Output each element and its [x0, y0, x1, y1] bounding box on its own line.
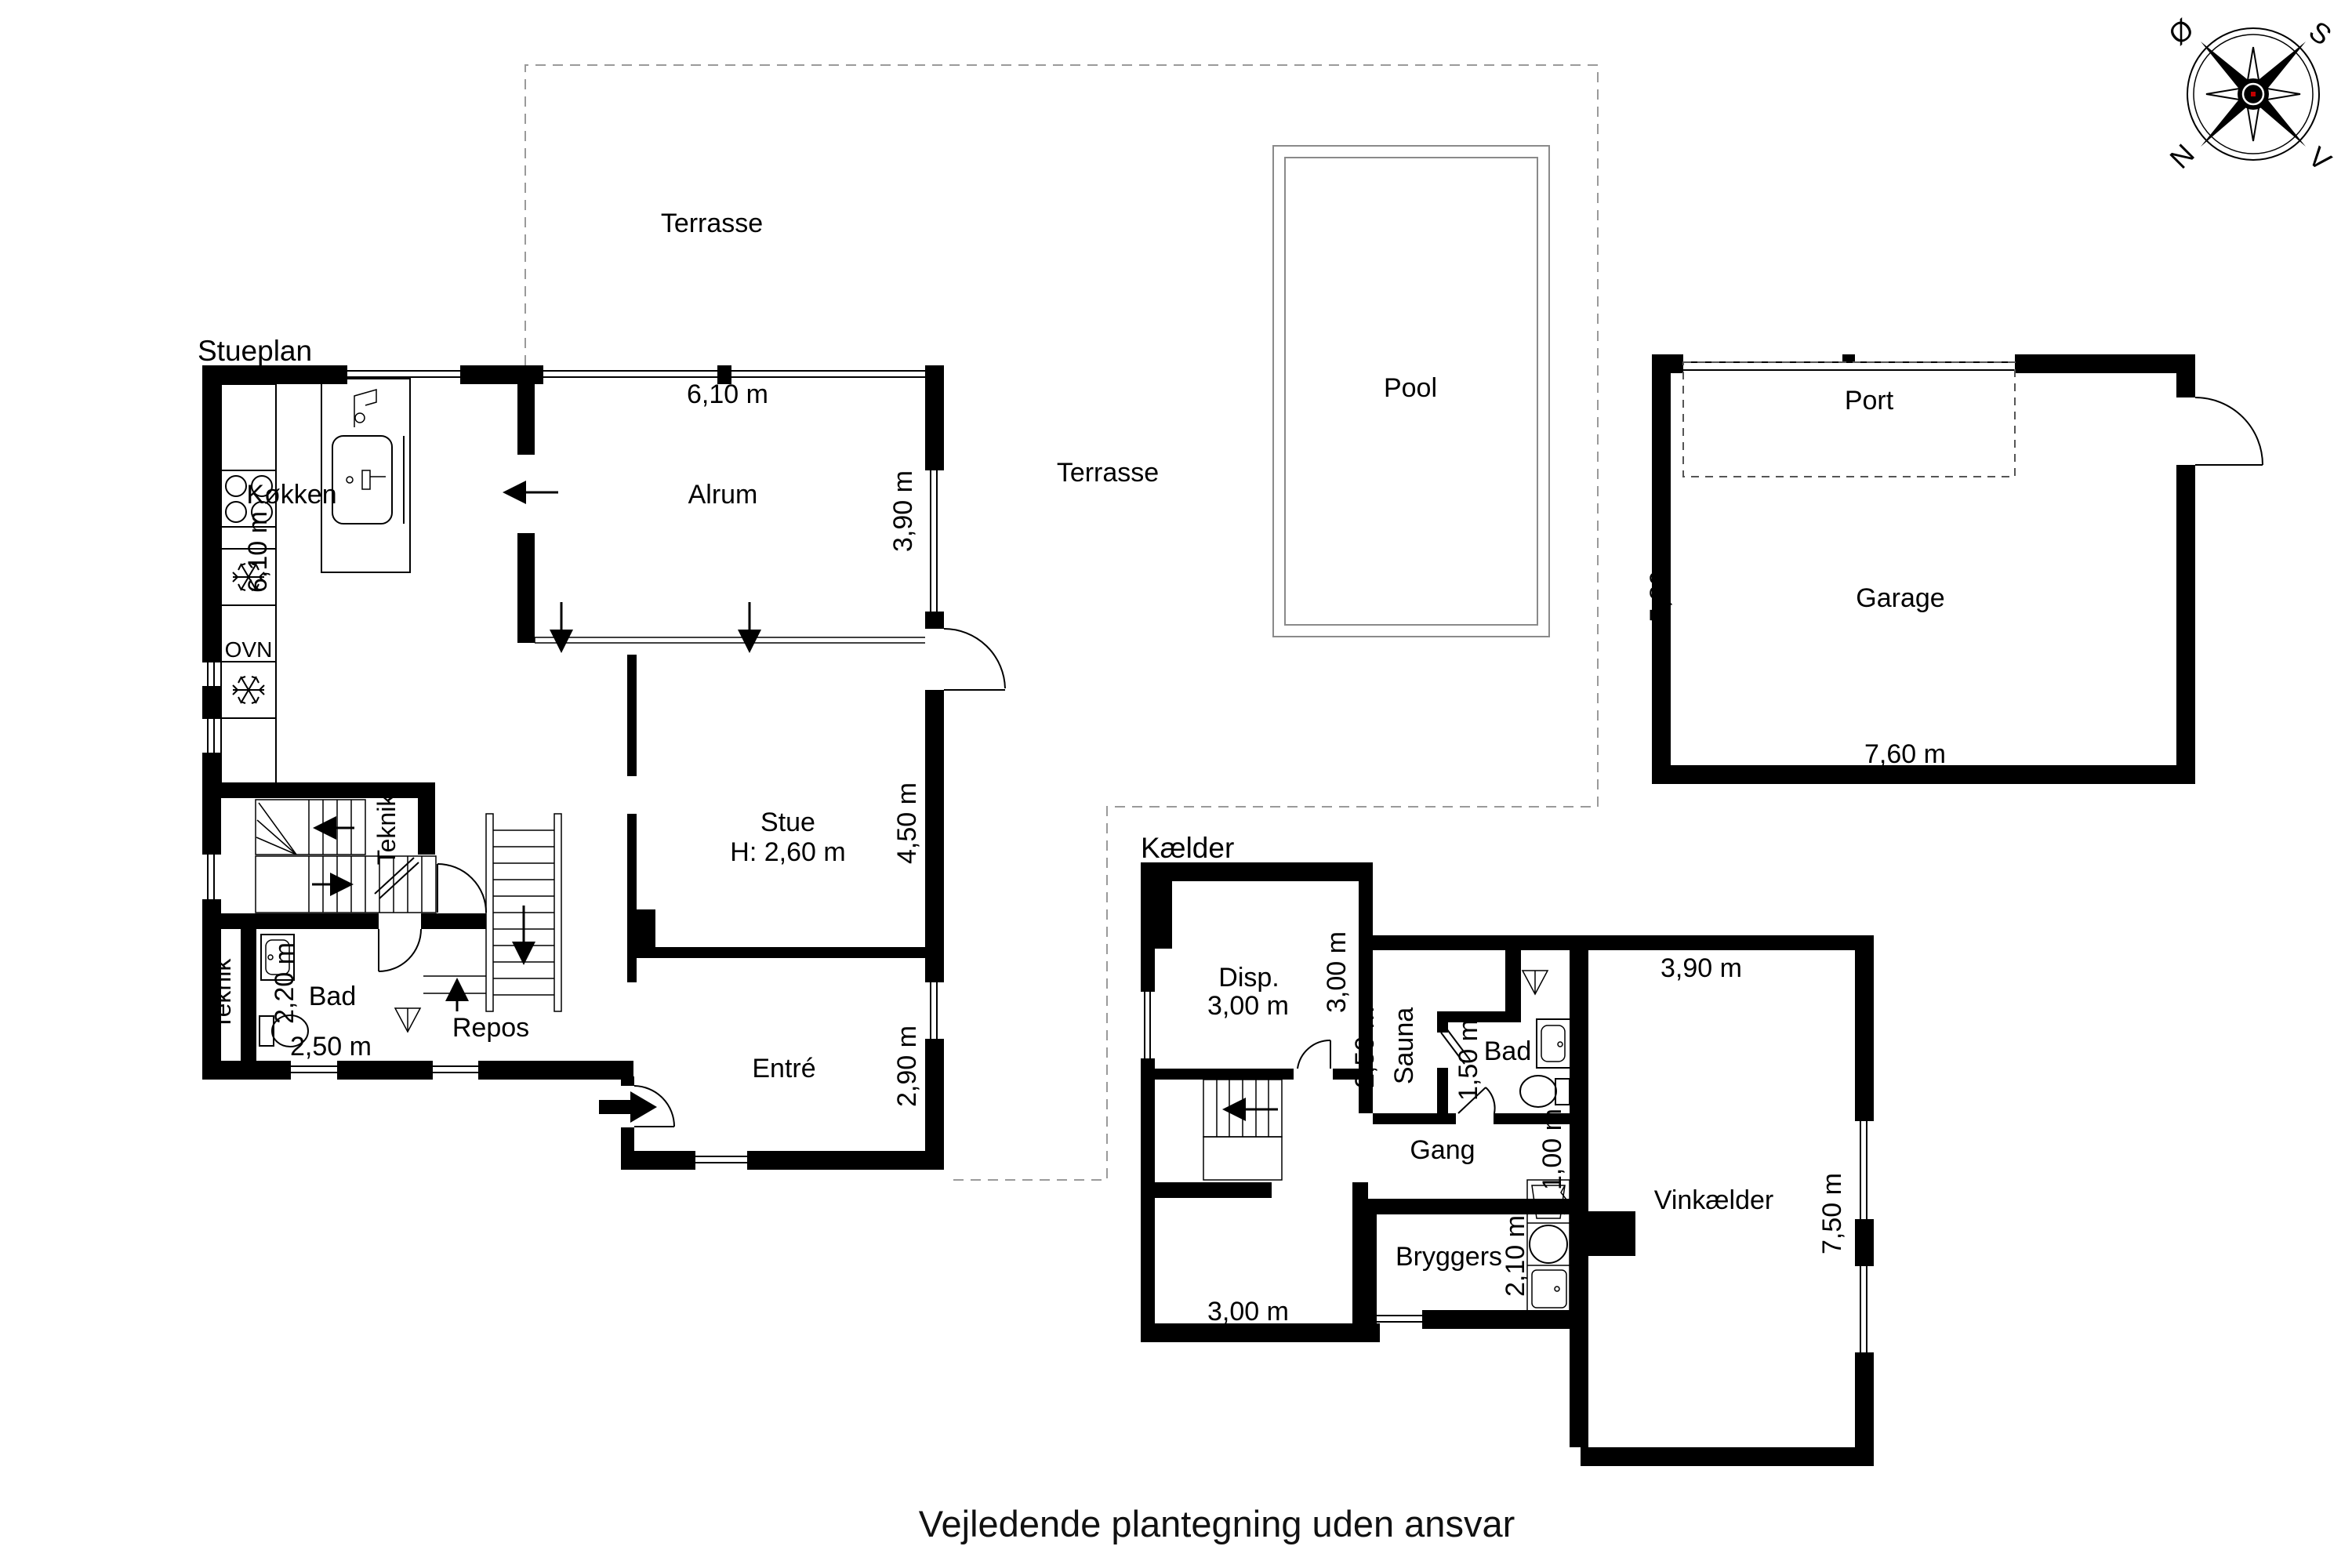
compass-rose — [2187, 28, 2319, 160]
port-label: Port — [1845, 386, 1894, 416]
basement-staircase — [1203, 1080, 1282, 1180]
garage-side-door — [2195, 397, 2263, 465]
entre-depth-label: 2,90 m — [892, 1025, 922, 1107]
compass-oest: Ø — [2162, 13, 2200, 51]
floorplan-drawing: StueplanKælderTerrasseTerrassePoolPortGa… — [0, 0, 2352, 1568]
bryggers-depth-label: 2,10 m — [1501, 1215, 1530, 1297]
repos-staircase — [423, 814, 561, 1011]
bad1-label: Bad — [309, 982, 357, 1011]
washing-machine-icon — [1530, 1225, 1567, 1263]
compass-center-logo — [2251, 92, 2256, 96]
teknik-lower-label: Teknik — [208, 958, 236, 1030]
stueplan-section-label: Stueplan — [198, 335, 312, 367]
sink-icon — [332, 436, 392, 524]
utility-sink-icon — [1532, 1270, 1566, 1308]
alrum-step-edge — [505, 492, 925, 651]
basement-room-width-label: 3,00 m — [1207, 1297, 1289, 1327]
kaelder-section-label: Kælder — [1141, 832, 1234, 864]
basement-plan — [1141, 862, 1874, 1466]
stue-label: Stue — [760, 808, 815, 837]
faucet-icon — [354, 390, 376, 427]
alrum-width-label: 6,10 m — [687, 379, 768, 409]
bad1-depth-label: 2,20 m — [270, 942, 299, 1024]
pool-label: Pool — [1384, 373, 1437, 403]
terrasse-right-label: Terrasse — [1057, 458, 1159, 488]
ovn-label: OVN — [225, 637, 273, 662]
stue-length-label: 4,50 m — [892, 782, 922, 864]
repos-label: Repos — [452, 1013, 529, 1043]
vinkaelder-width-label: 3,90 m — [1661, 953, 1742, 983]
bad2-label: Bad — [1484, 1036, 1532, 1066]
disp-width-label: 3,00 m — [1207, 991, 1289, 1021]
disp-label: Disp. — [1218, 963, 1279, 993]
terrasse-upper-label: Terrasse — [661, 209, 763, 238]
basement-walls — [1141, 862, 1874, 1466]
teknik-upper-label: Teknik — [372, 793, 401, 866]
floorplan-page: StueplanKælderTerrasseTerrassePoolPortGa… — [0, 0, 2352, 1568]
koekken-length-label: 6,10 m — [243, 511, 273, 593]
bad1-width-label: 2,50 m — [290, 1032, 372, 1062]
bad2-width-label: 1,50 m — [1454, 1019, 1483, 1101]
gang-nook-label: 1,00 m — [1537, 1109, 1567, 1190]
garage-door-port — [1683, 354, 2015, 477]
compass-vest: V — [2303, 140, 2338, 177]
garage-walls — [1652, 354, 2195, 784]
compass-nord: N — [2163, 137, 2200, 174]
alrum-label: Alrum — [688, 480, 758, 510]
vinkaelder-label: Vinkælder — [1654, 1185, 1773, 1215]
main-staircase — [256, 800, 436, 913]
vinkaelder-depth-label: 7,50 m — [1817, 1173, 1847, 1254]
entrance-arrow — [599, 1091, 657, 1123]
sauna-depth-label: 2,50 m — [1350, 1007, 1380, 1088]
entre-label: Entré — [752, 1054, 815, 1083]
disp-depth-label: 3,00 m — [1322, 931, 1352, 1013]
basement-toilet-icon — [1520, 1076, 1570, 1107]
garage-width-label: 7,60 m — [1864, 739, 1946, 769]
stue-height-label: H: 2,60 m — [730, 837, 845, 867]
sauna-label: Sauna — [1389, 1007, 1419, 1084]
kitchen-island — [321, 379, 410, 572]
garage-depth-label: 5,80 m — [1645, 541, 1675, 622]
alrum-depth-label: 3,90 m — [888, 470, 918, 552]
garage-label: Garage — [1856, 583, 1944, 613]
bryggers-label: Bryggers — [1396, 1242, 1502, 1272]
disclaimer-title: Vejledende plantegning uden ansvar — [919, 1502, 1515, 1545]
basement-sink-icon — [1537, 1019, 1571, 1068]
garage-building — [1652, 354, 2263, 784]
gang-label: Gang — [1410, 1135, 1475, 1165]
koekken-label: Køkken — [246, 480, 336, 510]
compass-syd: S — [2303, 15, 2338, 52]
